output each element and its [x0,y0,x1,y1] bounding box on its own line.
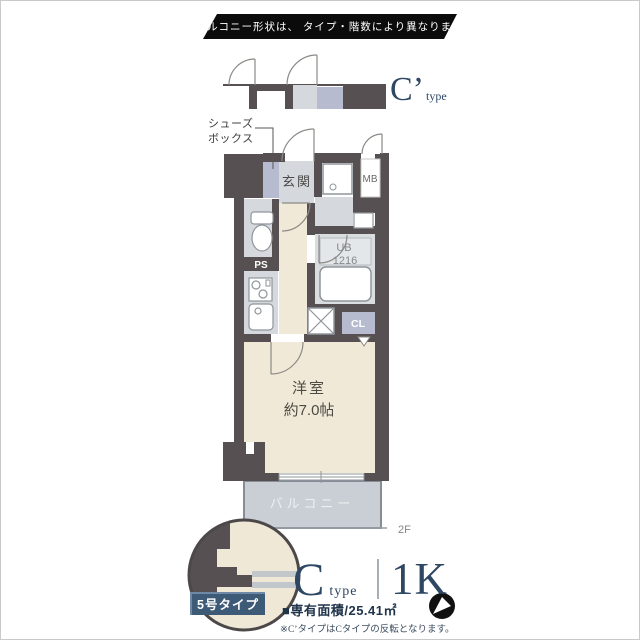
title-divider [377,559,379,599]
unit-bath-label: UB [336,242,351,254]
washer-drain-icon [330,184,336,190]
sink-icon [249,304,273,330]
entrance-door-arc [282,129,314,161]
exclusive-area-text: ■専有面積/25.41㎡ [282,600,397,619]
type-title: Ctype [293,553,357,607]
closet-label: CL [351,318,366,330]
balcony-label: バルコニー [270,496,355,511]
room-name-label: 洋室 [292,380,326,397]
unit-bath-size-label: 1216 [333,255,357,267]
toilet-tank-icon [251,212,273,224]
entrance-label: 玄関 [282,174,312,189]
washroom-area [315,197,353,227]
unit5-badge-label: 5号タイプ [197,597,259,612]
basin-icon [354,213,373,228]
room-size-label: 約7.0帖 [284,402,335,419]
floor-marker-label: 2F [398,524,411,536]
mini-plan-type-label: C’type [390,71,447,109]
washer-space [323,164,352,194]
pipe-space-label: PS [254,260,268,271]
mini-plan-c-prime [223,55,386,109]
toilet-bowl-icon [252,225,272,251]
crossed-box-icon [308,308,334,334]
layout-title: 1K [391,553,448,605]
hallway-area [279,203,307,334]
bathtub-icon [320,267,371,301]
shoes-box-label: シューズ ボックス [208,117,254,147]
floorplan-sheet: ※バルコニー形状は、 タイプ・階数により異なります。 [0,0,640,640]
shoes-box-area [263,161,279,198]
floorplan-graphic: 玄関 MB PS UB 1216 CL 洋室 約7.0帖 バルコニー 2F 5号… [1,1,640,640]
mirror-note-text: ※C’タイプはCタイプの反転となります。 [280,621,455,635]
pillar-notch [246,442,254,454]
meter-box-door-arc [362,134,382,154]
meter-box-label: MB [363,174,378,185]
